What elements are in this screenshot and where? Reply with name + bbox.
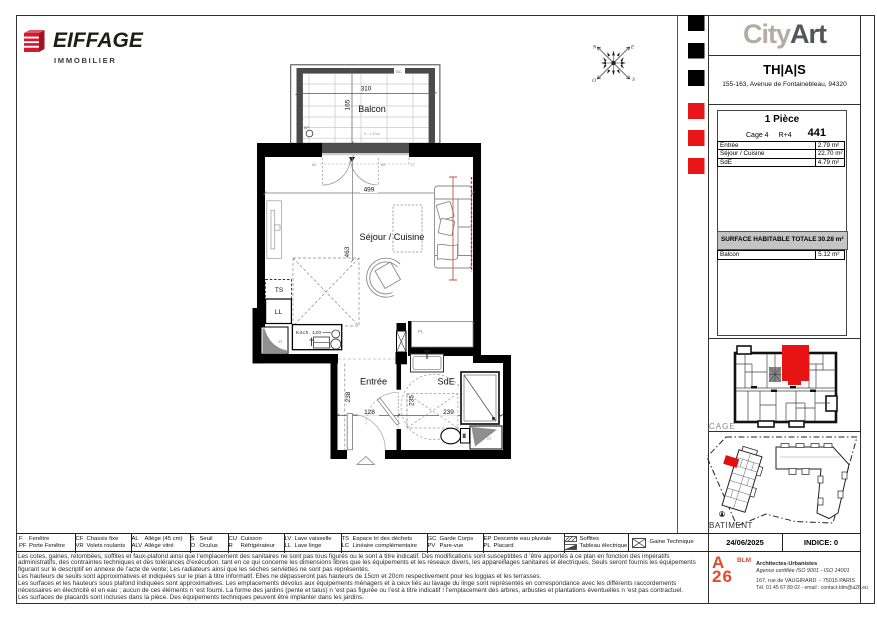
svg-text:60: 60 (381, 163, 385, 167)
svg-text:463: 463 (344, 246, 351, 257)
svg-text:S: S (632, 77, 635, 83)
svg-text:60: 60 (312, 163, 316, 167)
svg-text:GT: GT (278, 340, 282, 344)
svg-text:27: 27 (411, 163, 415, 167)
svg-text:TS: TS (275, 287, 284, 294)
svg-text:Entrée: Entrée (360, 377, 387, 387)
svg-text:O: O (592, 78, 596, 84)
svg-text:Kitch. 120: Kitch. 120 (296, 330, 321, 336)
svg-text:E: E (630, 45, 635, 51)
svg-text:N: N (592, 45, 597, 51)
svg-text:165: 165 (345, 99, 352, 110)
svg-text:235: 235 (409, 395, 416, 406)
svg-text:GC: GC (396, 69, 402, 74)
svg-text:Séjour / Cuisine: Séjour / Cuisine (360, 232, 425, 242)
svg-text:239: 239 (443, 409, 454, 416)
svg-text:LL: LL (275, 309, 283, 316)
svg-text:499: 499 (364, 187, 375, 194)
svg-text:SdE: SdE (438, 377, 455, 387)
svg-text:310: 310 (361, 86, 372, 93)
svg-text:GT: GT (487, 437, 491, 441)
svg-text:h : 1.10m: h : 1.10m (364, 132, 380, 136)
svg-text:PL: PL (418, 329, 424, 334)
svg-text:Balcon: Balcon (358, 104, 386, 114)
svg-text:128: 128 (364, 409, 375, 416)
svg-text:238: 238 (345, 391, 352, 402)
svg-text:EP: EP (304, 126, 309, 130)
